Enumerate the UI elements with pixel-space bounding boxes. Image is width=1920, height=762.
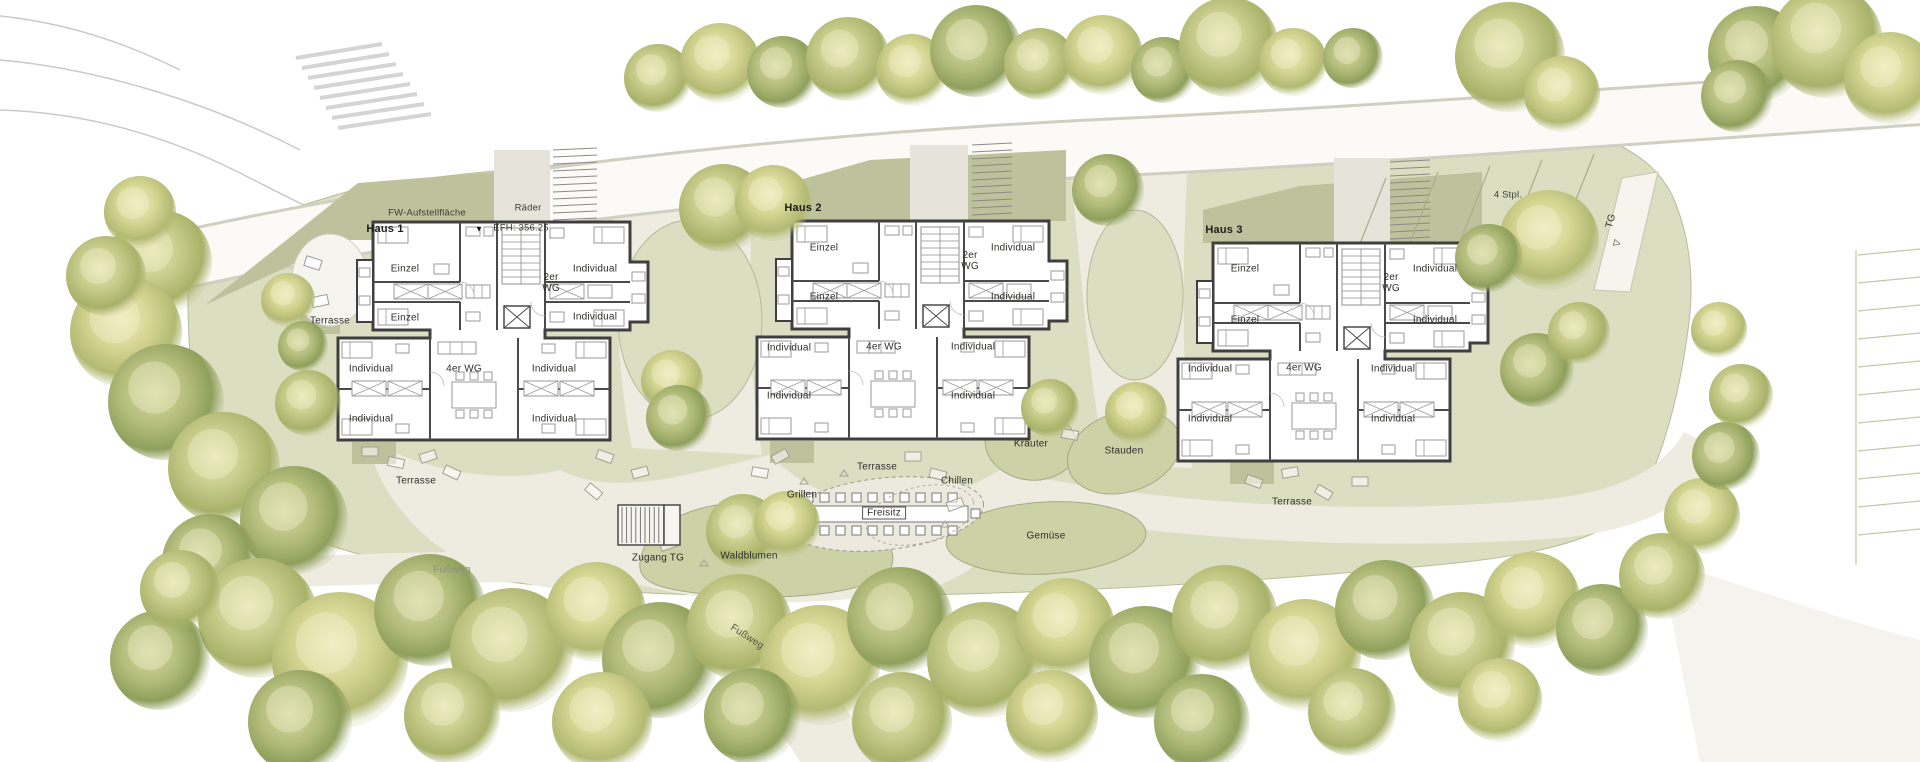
room-label: Individual: [951, 391, 995, 402]
garden-label-chillen: Chillen: [941, 476, 973, 487]
house-2-title: Haus 2: [784, 202, 821, 214]
fw-area-label: FW-Aufstellfläche: [388, 208, 466, 219]
room-label: Einzel: [1231, 264, 1259, 275]
room-label: Individual: [1371, 414, 1415, 425]
terrace-label-4: Terrasse: [1272, 497, 1312, 508]
room-label: Individual: [767, 391, 811, 402]
garden-label-freisitz: Freisitz: [862, 507, 906, 520]
room-label: 2er WG: [1377, 272, 1405, 294]
room-label: Individual: [349, 364, 393, 375]
room-label: Individual: [767, 343, 811, 354]
garden-label-gemuese: Gemüse: [1027, 531, 1066, 542]
parking-count-label: 4 Stpl.: [1494, 190, 1522, 201]
ramp-arrow-icon: ▽: [1611, 238, 1623, 248]
level-marker-icon: ▼: [475, 225, 483, 234]
footpath-label-1: Fußweg: [433, 565, 470, 576]
room-label: Individual: [532, 364, 576, 375]
garden-label-waldblumen: Waldblumen: [720, 551, 777, 562]
room-label: Einzel: [391, 264, 419, 275]
garden-label-stauden: Stauden: [1105, 446, 1144, 457]
garden-label-grillen: Grillen: [787, 490, 817, 501]
footpath-label-2: Fußweg: [728, 622, 765, 652]
room-label: Individual: [532, 414, 576, 425]
room-label: 2er WG: [956, 250, 984, 272]
room-label: Individual: [951, 342, 995, 353]
room-label: 4er WG: [446, 364, 482, 375]
bike-parking-label: Räder: [515, 203, 542, 214]
room-label: 4er WG: [1286, 363, 1322, 374]
garage-access-label: Zugang TG: [632, 553, 684, 564]
room-label: Einzel: [1231, 315, 1259, 326]
garage-label: TG: [1604, 213, 1618, 230]
room-label: Einzel: [810, 243, 838, 254]
room-label: Individual: [991, 292, 1035, 303]
room-label: Individual: [1188, 414, 1232, 425]
terrace-label-3: Terrasse: [857, 462, 897, 473]
room-label: 4er WG: [866, 342, 902, 353]
room-label: Individual: [1188, 364, 1232, 375]
terrace-label-1: Terrasse: [310, 316, 350, 327]
room-label: Individual: [1413, 315, 1457, 326]
room-label: Individual: [349, 414, 393, 425]
site-plan: FW-Aufstellfläche Räder EFH: 356.25 ▼ 4 …: [0, 0, 1920, 762]
plan-labels: FW-Aufstellfläche Räder EFH: 356.25 ▼ 4 …: [0, 0, 1920, 762]
room-label: Individual: [991, 243, 1035, 254]
room-label: 2er WG: [537, 272, 565, 294]
room-label: Individual: [1371, 364, 1415, 375]
room-label: Einzel: [810, 292, 838, 303]
room-label: Individual: [1413, 264, 1457, 275]
house-3-title: Haus 3: [1205, 224, 1242, 236]
house-1-title: Haus 1: [366, 223, 403, 235]
room-label: Individual: [573, 264, 617, 275]
terrace-label-2: Terrasse: [396, 476, 436, 487]
room-label: Einzel: [391, 313, 419, 324]
garden-label-kraeuter: Kräuter: [1014, 439, 1048, 450]
level-label: EFH: 356.25: [493, 223, 549, 234]
room-label: Individual: [573, 312, 617, 323]
